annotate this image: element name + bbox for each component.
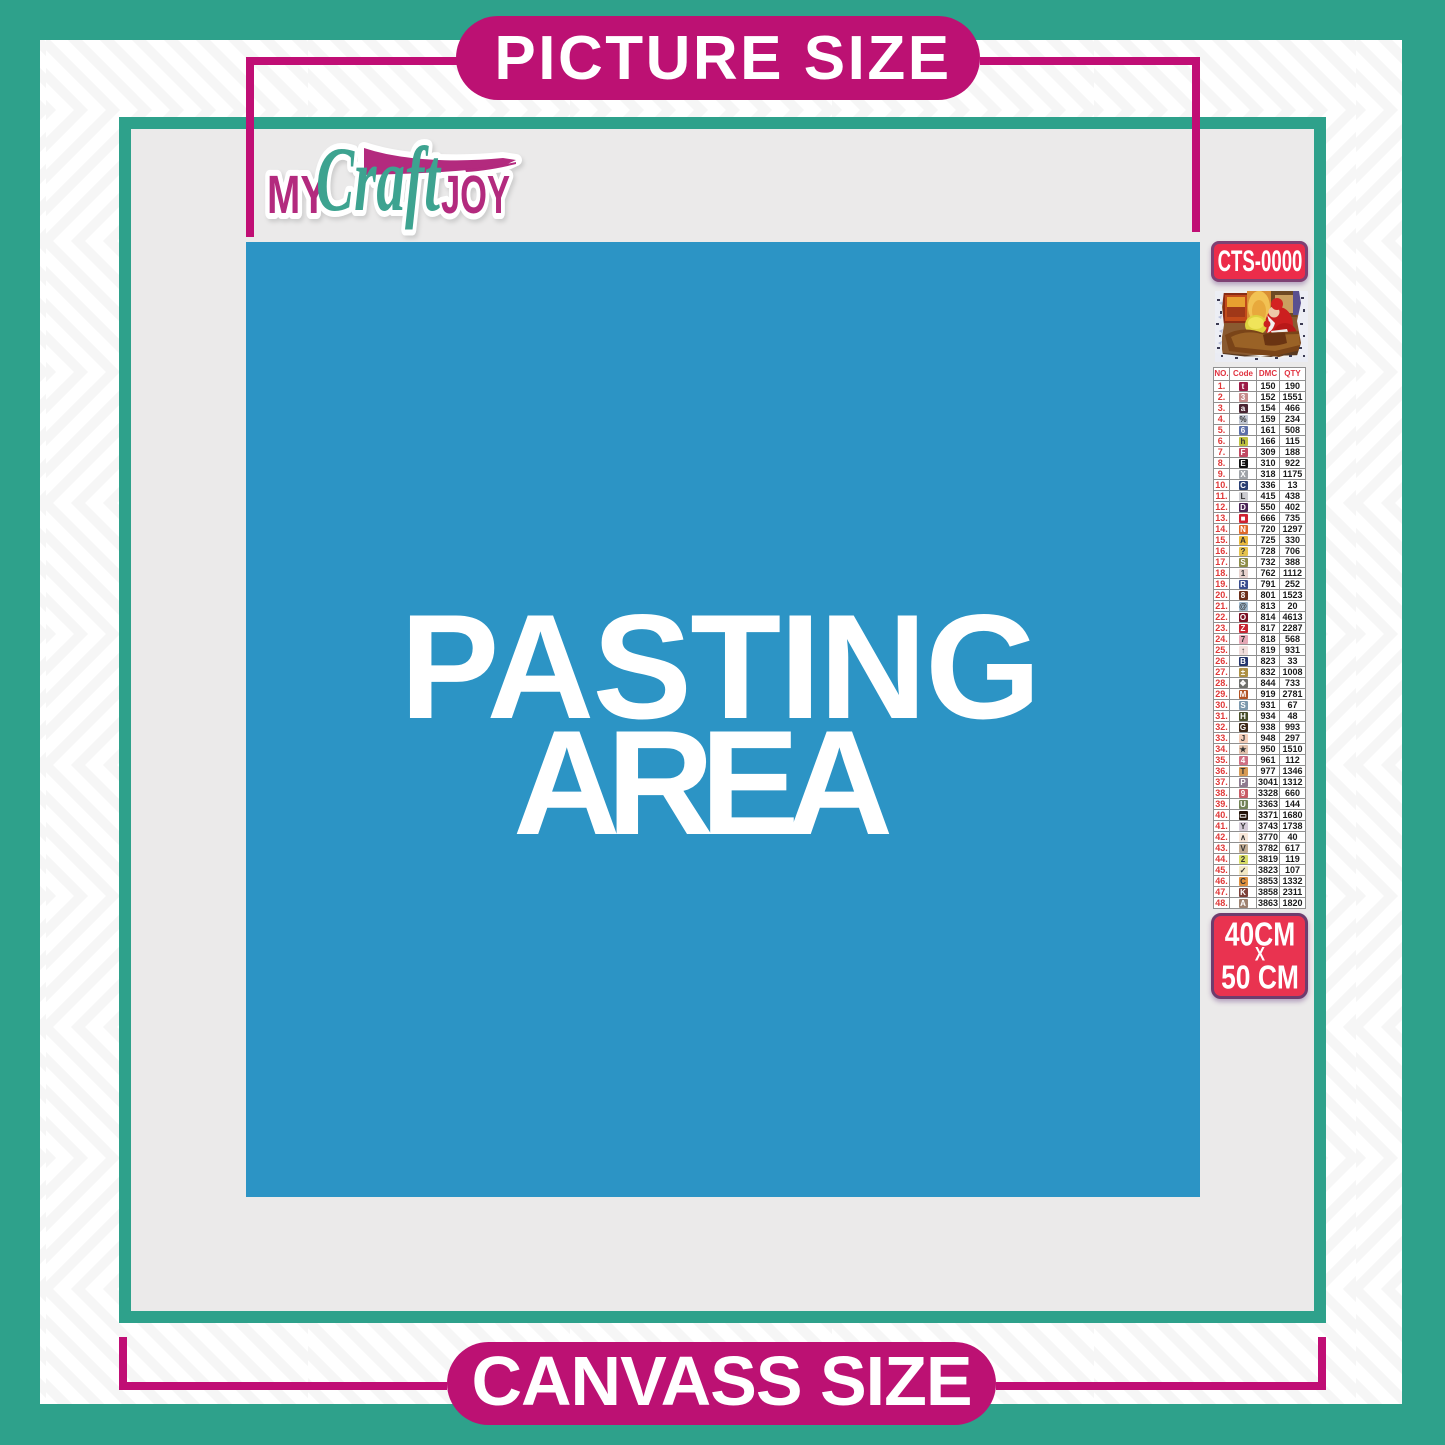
svg-text:JOY: JOY (441, 165, 510, 225)
svg-text:Craft: Craft (316, 130, 442, 230)
